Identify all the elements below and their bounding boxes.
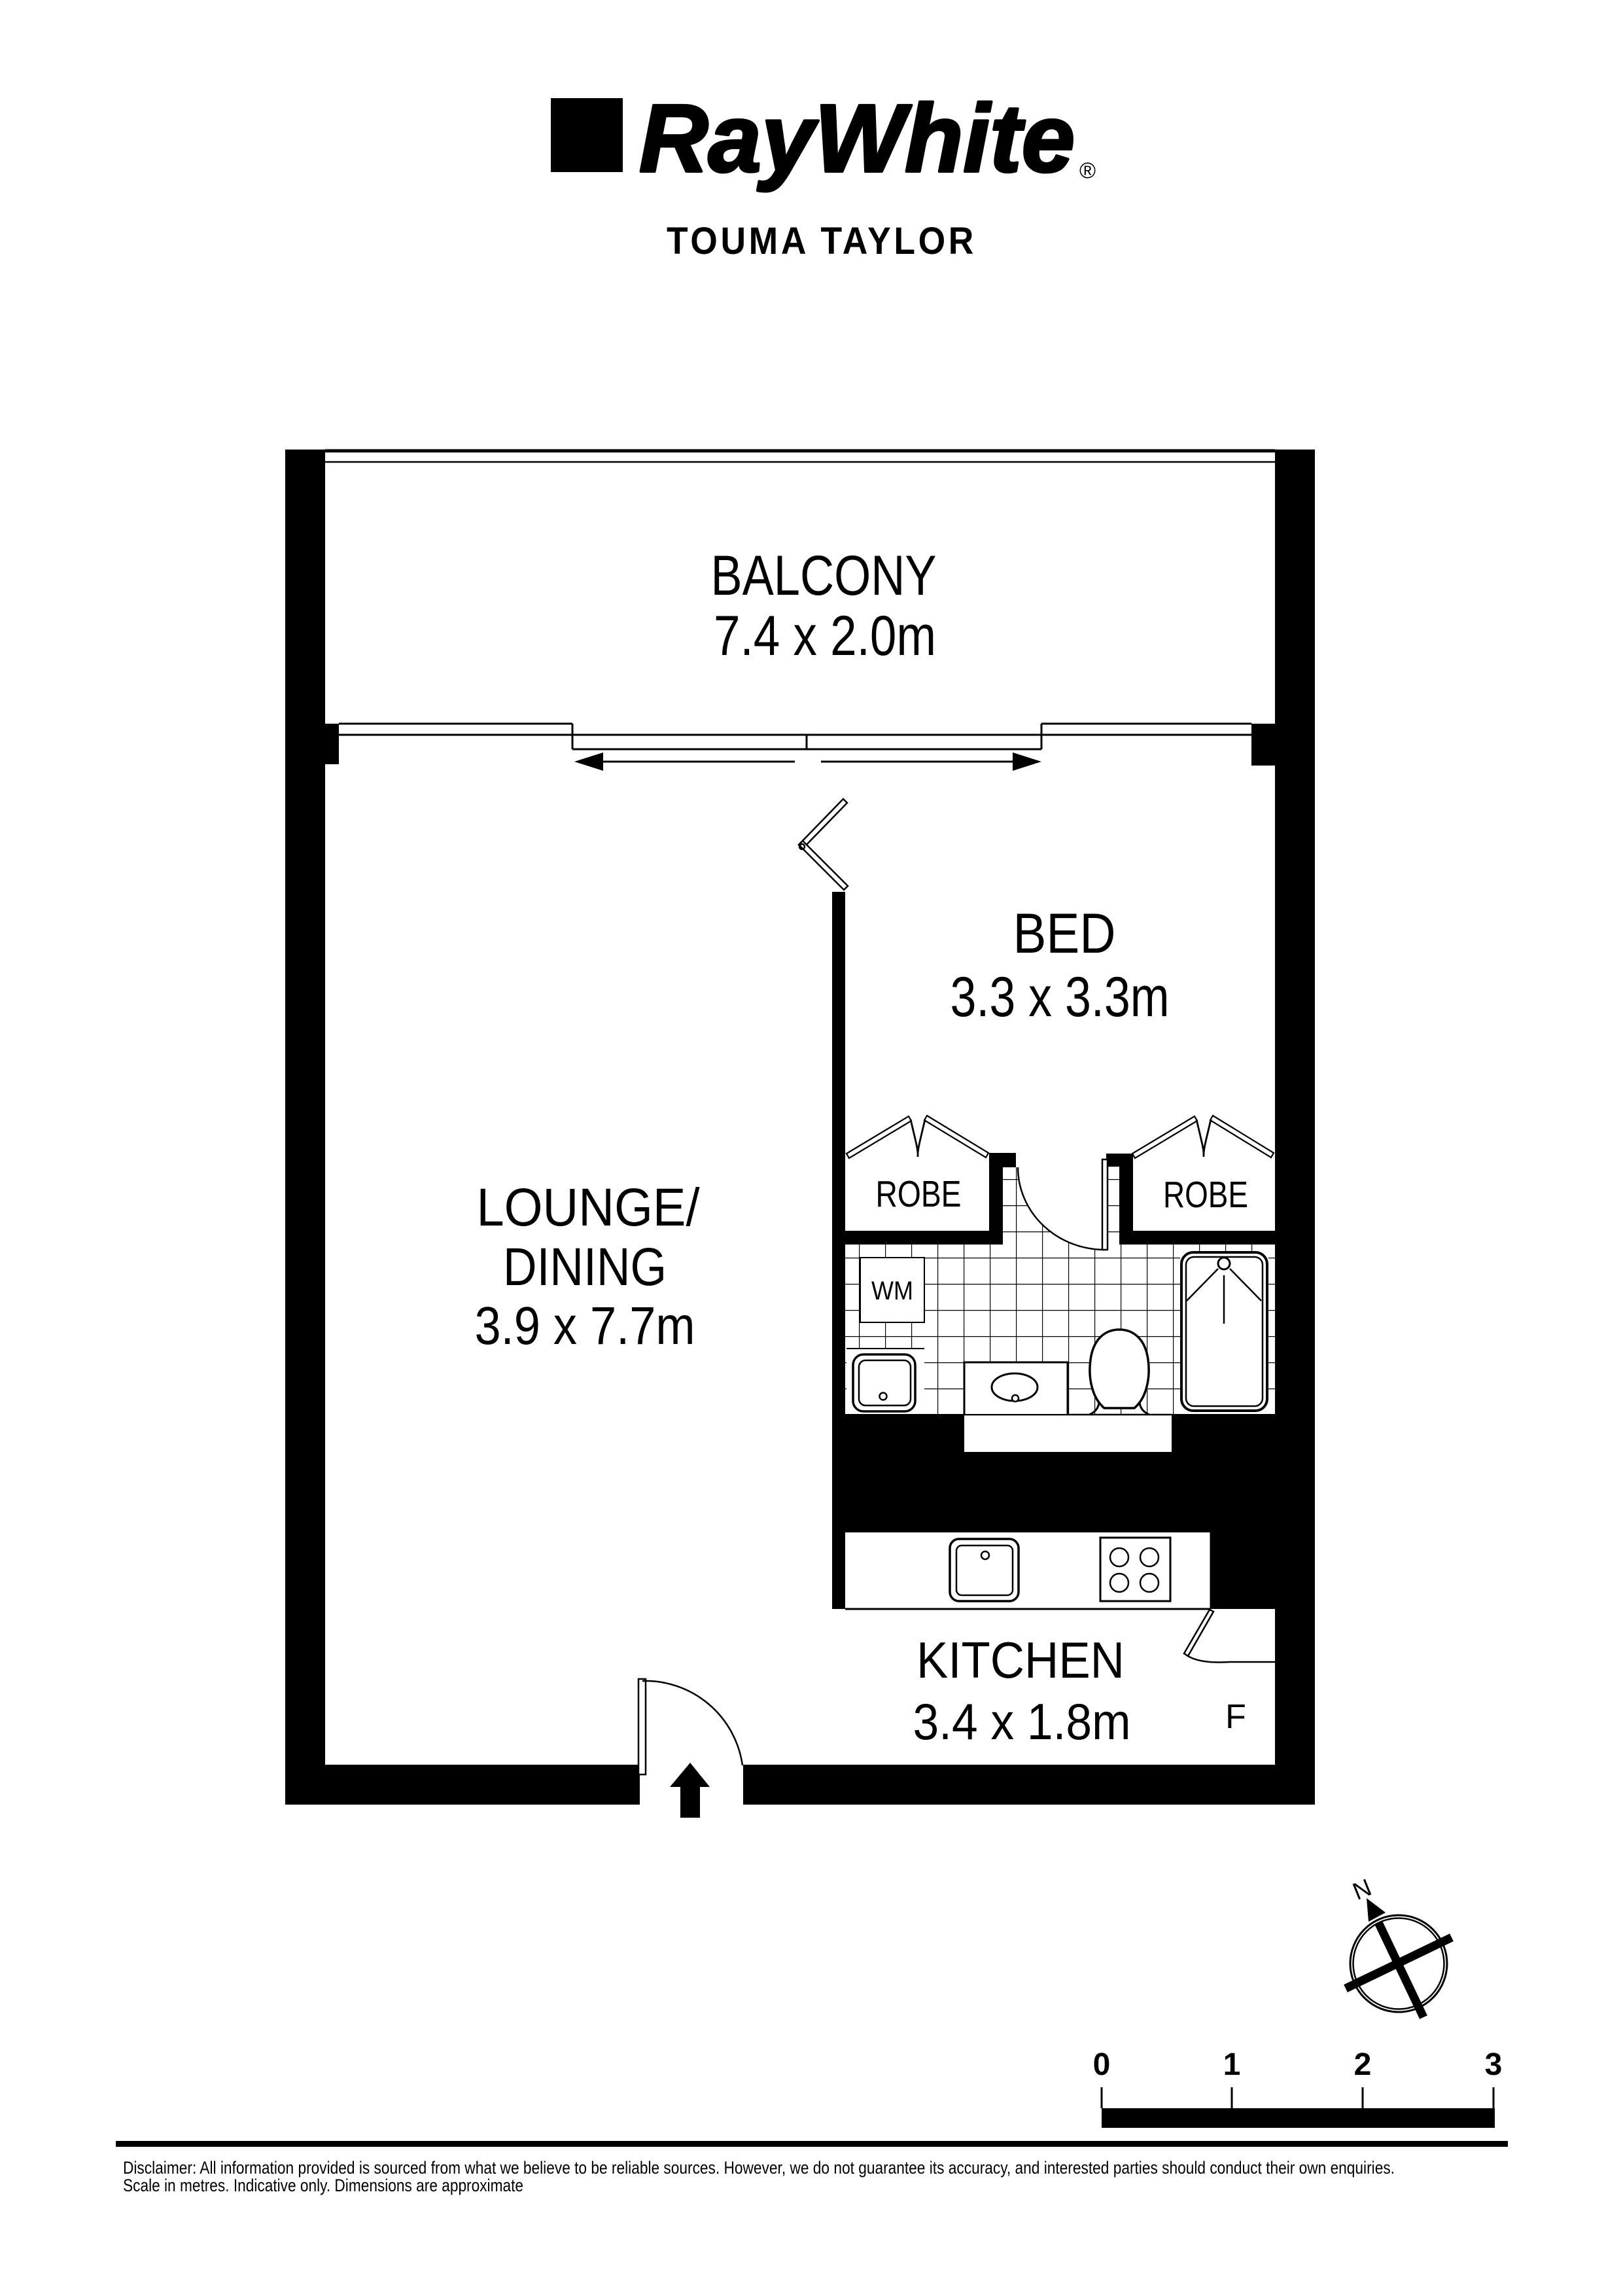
svg-text:3: 3 (1485, 2047, 1503, 2082)
svg-text:0: 0 (1093, 2047, 1111, 2082)
svg-text:2: 2 (1354, 2047, 1372, 2082)
svg-text:WM: WM (871, 1277, 913, 1305)
svg-text:3.3 x 3.3m: 3.3 x 3.3m (951, 966, 1170, 1029)
svg-text:LOUNGE/: LOUNGE/ (477, 1178, 700, 1237)
svg-text:BALCONY: BALCONY (711, 544, 937, 607)
svg-text:®: ® (1079, 158, 1096, 183)
svg-text:1: 1 (1223, 2047, 1241, 2082)
svg-text:RayWhite: RayWhite (639, 85, 1075, 192)
svg-text:F: F (1225, 1698, 1246, 1736)
svg-text:TOUMA TAYLOR: TOUMA TAYLOR (667, 220, 977, 262)
svg-text:3.9 x 7.7m: 3.9 x 7.7m (475, 1296, 695, 1356)
svg-text:DINING: DINING (503, 1237, 667, 1297)
svg-text:ROBE: ROBE (1163, 1174, 1248, 1216)
svg-text:Disclaimer: All information pr: Disclaimer: All information provided is … (123, 2158, 1395, 2178)
svg-text:ROBE: ROBE (876, 1173, 962, 1215)
svg-text:BED: BED (1013, 902, 1116, 965)
svg-text:KITCHEN: KITCHEN (916, 1631, 1125, 1689)
svg-text:Scale in metres. Indicative on: Scale in metres. Indicative only. Dimens… (123, 2176, 523, 2195)
svg-text:7.4 x 2.0m: 7.4 x 2.0m (714, 605, 936, 667)
svg-text:3.4 x 1.8m: 3.4 x 1.8m (913, 1693, 1131, 1750)
